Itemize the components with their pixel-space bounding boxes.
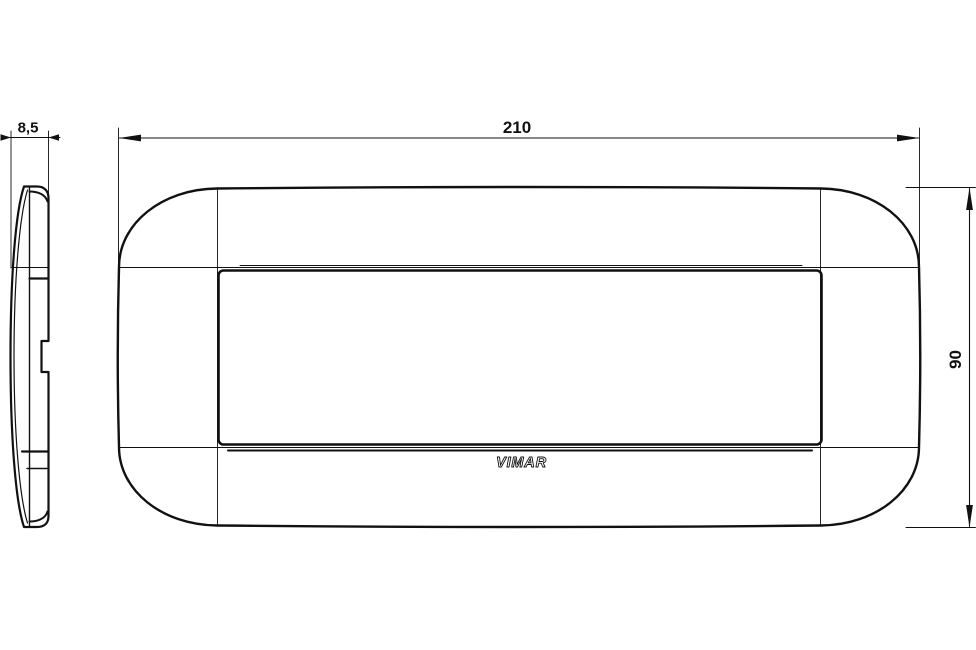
side-top-inner-cap-line <box>30 192 48 202</box>
side-view: 8,5 <box>1 120 61 528</box>
dim-width-label: 210 <box>503 118 531 137</box>
module-opening <box>219 266 822 451</box>
dim-thickness: 8,5 <box>1 120 61 269</box>
module-opening-frame <box>219 271 822 445</box>
dim-thickness-label: 8,5 <box>18 120 39 137</box>
dim-height: 90 <box>906 188 976 528</box>
dim-height-label: 90 <box>946 350 965 369</box>
front-plate-outline <box>118 187 921 527</box>
dim-height-arrow-bottom-icon <box>966 505 973 528</box>
dim-thickness-arrow-left-icon <box>1 134 12 140</box>
technical-drawing-page: 8,5 <box>0 0 976 650</box>
technical-drawing-canvas: 8,5 <box>0 0 976 650</box>
brand-logo-text: VIMAR <box>496 455 547 471</box>
dim-width-arrow-left-icon <box>119 135 142 142</box>
dim-width-arrow-right-icon <box>897 135 920 142</box>
front-view: VIMAR 210 90 <box>118 118 976 528</box>
dim-thickness-arrow-right-icon <box>49 134 60 140</box>
front-tangent-lines <box>120 189 919 526</box>
side-bottom-inner-cap-line <box>30 512 48 522</box>
dim-height-arrow-top-icon <box>966 188 973 211</box>
dim-width: 210 <box>119 118 920 268</box>
